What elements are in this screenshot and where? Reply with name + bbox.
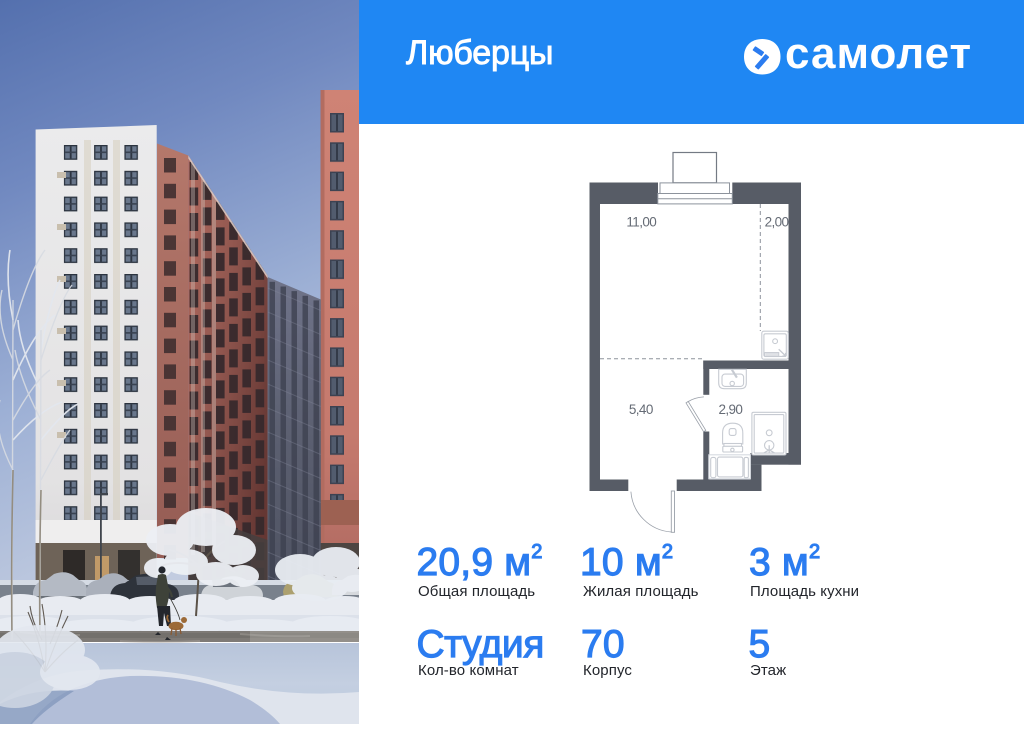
svg-text:5,40: 5,40: [629, 402, 653, 417]
svg-text:2,00: 2,00: [765, 214, 789, 229]
svg-text:11,00: 11,00: [626, 214, 656, 229]
svg-text:2,90: 2,90: [718, 402, 742, 417]
